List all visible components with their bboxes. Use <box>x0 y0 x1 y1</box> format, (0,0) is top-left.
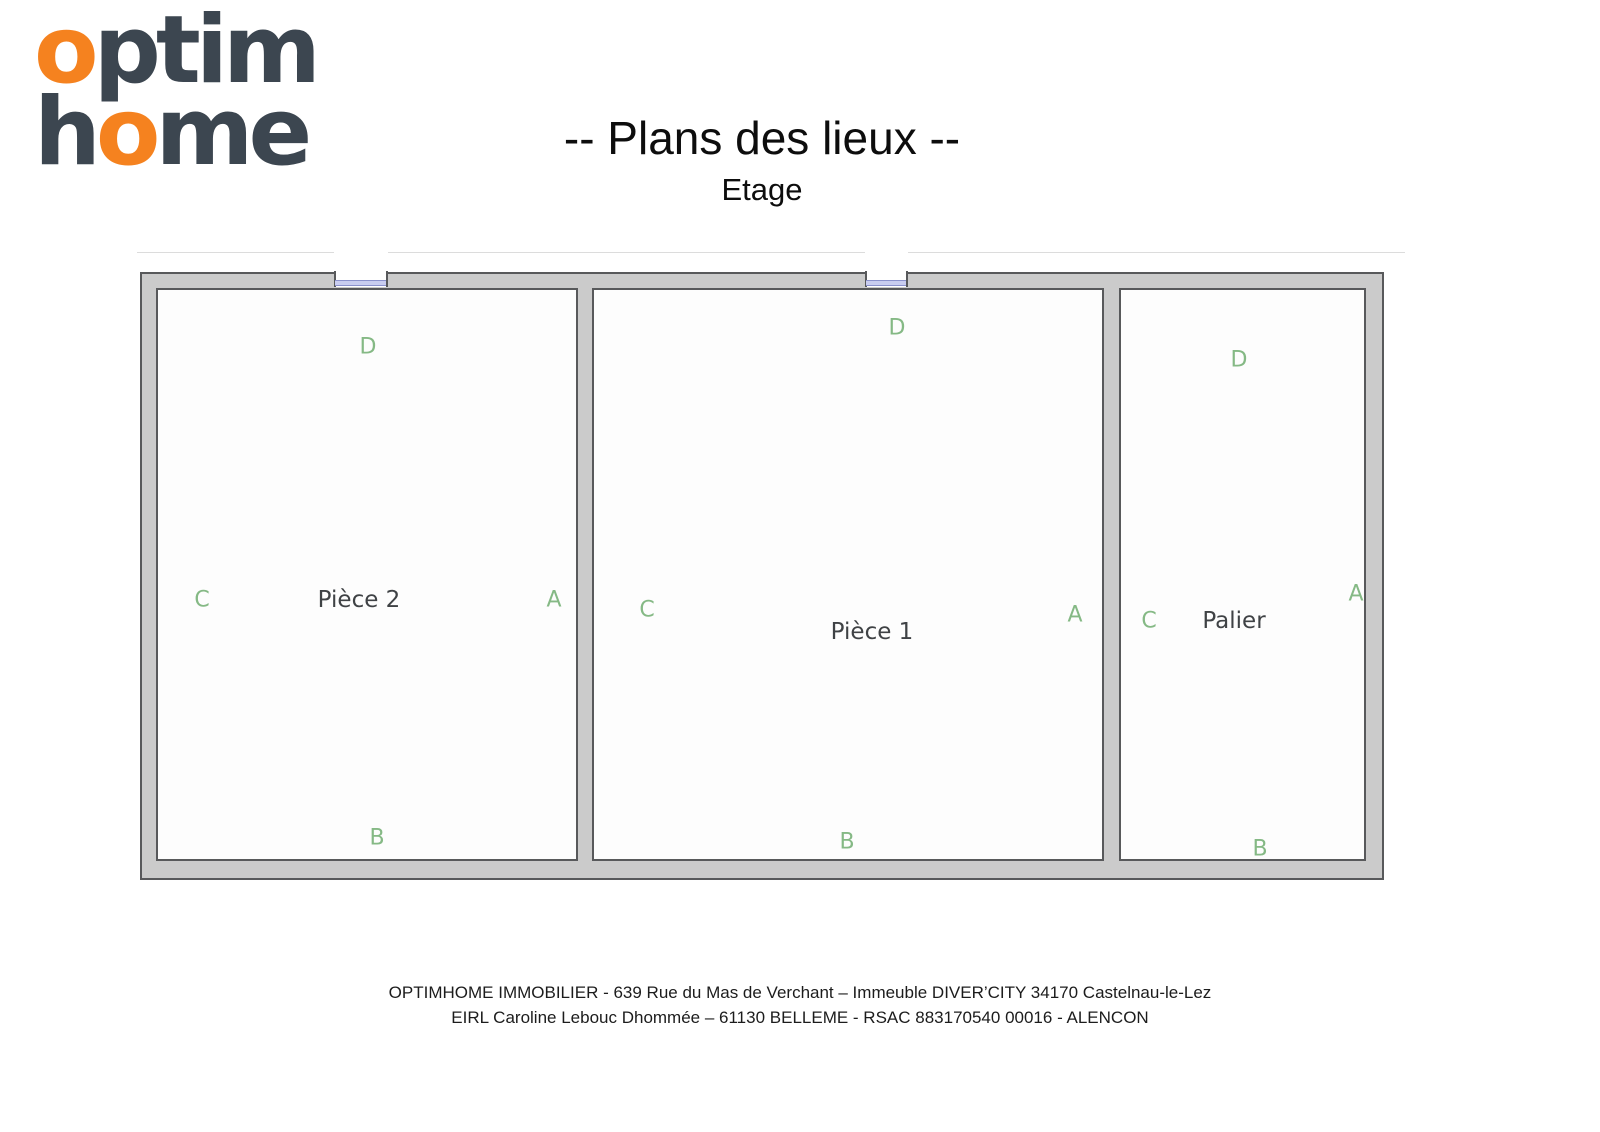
heading-block: -- Plans des lieux -- Etage <box>140 112 1384 208</box>
orientation-letter-a: A <box>546 588 561 613</box>
orientation-letter-d: D <box>360 335 377 360</box>
page-title: -- Plans des lieux -- <box>140 112 1384 164</box>
room-label-piece-1: Pièce 1 <box>831 619 914 645</box>
orientation-letter-b: B <box>839 830 854 855</box>
logo-letter-h: h <box>34 78 96 187</box>
orientation-letter-a: A <box>1348 582 1363 607</box>
window-icon-piece-1 <box>865 245 908 287</box>
footer-address-line: OPTIMHOME IMMOBILIER - 639 Rue du Mas de… <box>0 980 1600 1005</box>
orientation-letter-a: A <box>1067 603 1082 628</box>
orientation-letter-c: C <box>639 598 654 623</box>
floor-plan: D C A B Pièce 2 D C A B Pièce 1 D C A B … <box>140 272 1384 880</box>
footer-legal-line: EIRL Caroline Lebouc Dhommée – 61130 BEL… <box>0 1005 1600 1030</box>
window-icon-piece-2 <box>334 245 388 287</box>
window-sill <box>866 280 907 286</box>
footer: OPTIMHOME IMMOBILIER - 639 Rue du Mas de… <box>0 980 1600 1030</box>
orientation-letter-b: B <box>1252 837 1267 862</box>
orientation-letter-c: C <box>1141 609 1156 634</box>
page-subtitle: Etage <box>140 172 1384 208</box>
room-piece-2: D C A B Pièce 2 <box>156 288 578 861</box>
orientation-letter-d: D <box>1231 348 1248 373</box>
wall-end-cap <box>386 271 388 287</box>
wall-end-cap <box>906 271 908 287</box>
room-label-piece-2: Pièce 2 <box>318 587 401 613</box>
orientation-letter-d: D <box>889 316 906 341</box>
orientation-letter-b: B <box>369 826 384 851</box>
plan-boundary-line <box>137 252 1405 253</box>
room-palier: D C A B Palier <box>1119 288 1366 861</box>
orientation-letter-c: C <box>194 588 209 613</box>
window-sill <box>335 280 387 286</box>
room-piece-1: D C A B Pièce 1 <box>592 288 1104 861</box>
room-label-palier: Palier <box>1202 608 1265 634</box>
